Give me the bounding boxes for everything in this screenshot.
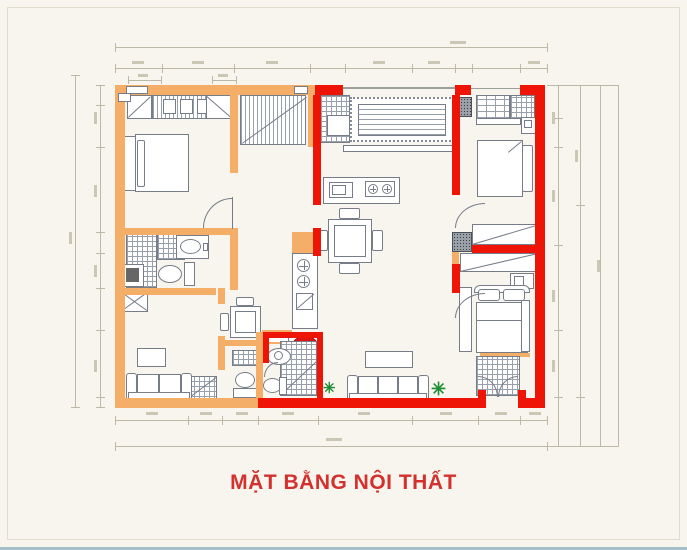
dining-chair — [220, 313, 229, 331]
dim-number — [597, 260, 600, 272]
dim-number — [552, 112, 555, 124]
dim-tick — [520, 416, 521, 425]
dim-tick — [547, 43, 548, 52]
wall-bedroom3-left — [452, 95, 460, 195]
dim-tick — [472, 64, 473, 73]
stove-burner — [297, 275, 310, 288]
dim-number — [94, 185, 97, 197]
tv-cabinet — [137, 348, 166, 367]
shaft-column — [452, 232, 472, 252]
dim-tick — [412, 64, 413, 73]
bed1-pillow — [137, 140, 145, 187]
dim-tick — [554, 397, 563, 398]
wall-bedroom4-left — [452, 264, 460, 293]
dim-line — [100, 85, 101, 408]
stove-burner — [382, 184, 392, 194]
wall-top-red-c — [520, 85, 545, 95]
dim-tick — [115, 416, 116, 425]
wall-switch-box — [118, 93, 131, 102]
wall-kitchen-notch — [292, 232, 313, 253]
bedroom1-door-leaf — [232, 197, 233, 229]
nightstand-top — [524, 120, 532, 128]
wardrobe-box — [180, 99, 193, 114]
toilet2-bowl — [235, 372, 255, 388]
dim-tick — [576, 205, 585, 206]
stove-burner — [297, 259, 310, 272]
dim-tick — [554, 147, 563, 148]
sofa1-cushion — [159, 374, 181, 393]
wall-top-red-b — [455, 85, 471, 95]
dim-line — [115, 420, 548, 421]
dim-number — [529, 412, 541, 415]
dim-number — [552, 190, 555, 202]
pedestal-basin-center — [274, 351, 283, 360]
dim-number — [528, 61, 540, 64]
dim-tick — [258, 416, 259, 425]
dim-tick — [310, 64, 311, 73]
dim-tick — [212, 76, 213, 84]
wall-bottom-red-corner — [526, 398, 545, 408]
dim-number — [450, 41, 466, 44]
laundry-floor-tile — [510, 95, 535, 119]
dim-tick — [96, 397, 105, 398]
dim-tick — [520, 64, 521, 73]
dim-line — [115, 446, 548, 447]
dim-number — [373, 61, 385, 64]
wall-shower-right — [317, 338, 323, 398]
sofa1-cushion — [137, 374, 159, 393]
dim-tick — [412, 416, 413, 425]
wardrobe-box — [163, 99, 176, 114]
dim-number — [266, 61, 278, 64]
dim-tick — [234, 64, 235, 73]
balcony-threshold — [343, 145, 455, 152]
dim-tick — [554, 118, 563, 119]
wall-top-red-a — [315, 85, 343, 95]
dim-tick — [96, 232, 105, 233]
dim-line — [128, 80, 162, 81]
balcony-drying-rack — [358, 104, 446, 136]
dim-line — [212, 80, 237, 81]
dim-number — [200, 412, 212, 415]
wall-divider-red-lower — [313, 228, 321, 256]
dim-number — [218, 74, 228, 77]
dim-number — [236, 412, 248, 415]
wall-bath1-top — [125, 228, 238, 235]
dining-chair — [372, 230, 383, 251]
dim-tick — [547, 442, 548, 451]
plant-icon: ✳ — [431, 380, 446, 398]
dim-tick — [96, 288, 105, 289]
dim-number — [326, 438, 342, 441]
plant-icon: ✳ — [323, 381, 336, 396]
dim-number — [440, 412, 452, 415]
wall-bottom-left — [115, 398, 258, 408]
dim-tick — [96, 147, 105, 148]
dim-number — [552, 290, 555, 302]
dim-line — [547, 446, 618, 447]
wall-bath1-bottom — [125, 288, 216, 295]
dim-tick — [71, 407, 80, 408]
dim-number — [94, 360, 97, 372]
kitchen-sink-basin — [332, 185, 346, 195]
wall-bedroom1-right — [230, 95, 238, 173]
dim-number — [94, 265, 97, 277]
dim-line — [75, 75, 76, 408]
balcony-railing — [471, 88, 520, 89]
wall-bottom-red — [258, 398, 478, 408]
wall-bedrooms-divider — [472, 245, 540, 253]
dim-tick — [345, 64, 346, 73]
wall-shower-left — [263, 338, 269, 363]
dim-line — [115, 68, 548, 69]
bath1-faucet — [203, 243, 208, 251]
dim-tick — [547, 416, 548, 425]
dim-number — [94, 112, 97, 124]
bed3-mattress — [477, 140, 523, 197]
dim-tick — [162, 64, 163, 73]
dim-number — [575, 150, 578, 162]
dining-chair — [339, 263, 360, 274]
entry-door-jamb — [518, 390, 526, 408]
dim-line — [547, 85, 618, 86]
bed4-side-rail — [521, 300, 530, 352]
dining-table-top — [334, 225, 366, 257]
toilet1-tank — [184, 262, 195, 286]
dim-tick — [554, 245, 563, 246]
dining-chair — [236, 297, 254, 306]
dim-tick — [96, 407, 105, 408]
wall-hall — [218, 288, 225, 304]
dim-tick — [222, 416, 223, 425]
dim-number — [358, 412, 370, 415]
dim-tick — [188, 416, 189, 425]
dim-tick — [96, 253, 105, 254]
dim-number — [138, 74, 148, 77]
dim-tick — [478, 416, 479, 425]
dim-tick — [161, 76, 162, 84]
wall-unit-divider-red — [313, 95, 321, 205]
balcony-railing — [343, 87, 455, 89]
dim-tick — [455, 64, 456, 73]
breakfast-table-top — [235, 311, 256, 333]
dim-number — [69, 232, 72, 244]
dim-number — [132, 61, 144, 64]
dim-tick — [71, 75, 80, 76]
ac-unit — [327, 115, 350, 136]
toilet3-tank — [279, 377, 287, 395]
dim-tick — [236, 76, 237, 84]
stove-burner — [368, 184, 378, 194]
drawing-title: MẶT BẰNG NỘI THẤT — [0, 471, 687, 495]
dining-chair — [339, 208, 360, 219]
dim-tick — [128, 76, 129, 84]
dim-line — [618, 85, 619, 447]
laundry-floor-brick — [476, 95, 510, 119]
dim-line — [558, 85, 559, 447]
bed1-headboard — [124, 136, 136, 191]
bed4-blanket-line — [477, 320, 527, 321]
toilet1-bowl — [158, 265, 182, 283]
dim-tick — [96, 330, 105, 331]
dim-tick — [115, 64, 116, 73]
coffee-table — [365, 351, 413, 368]
dim-number — [495, 412, 507, 415]
dim-tick — [115, 43, 116, 52]
window — [294, 86, 308, 94]
wall-stub-orange — [452, 252, 459, 264]
wall-left-perimeter — [115, 85, 125, 408]
dim-tick — [96, 105, 105, 106]
dim-line — [580, 85, 581, 447]
bath1-washbasin — [180, 239, 201, 254]
dim-number — [428, 61, 440, 64]
dim-number — [192, 61, 204, 64]
dim-number — [282, 412, 294, 415]
dim-number — [552, 360, 555, 372]
wall-bedroom1-right-lower — [230, 228, 238, 290]
wall-wc1-right — [256, 332, 263, 398]
dim-tick — [115, 442, 116, 451]
bedroom3-window-sill — [476, 118, 521, 125]
dim-number — [146, 412, 158, 415]
dim-line — [600, 85, 601, 447]
dim-tick — [554, 330, 563, 331]
toilet2-tank — [233, 388, 257, 398]
dim-line — [115, 47, 548, 48]
washing-machine-drum — [126, 268, 139, 282]
dim-tick — [547, 64, 548, 73]
dim-tick — [318, 416, 319, 425]
dim-tick — [96, 85, 105, 86]
wall-shower-top — [263, 332, 323, 338]
dim-tick — [576, 397, 585, 398]
bed3-pillow — [522, 145, 533, 192]
